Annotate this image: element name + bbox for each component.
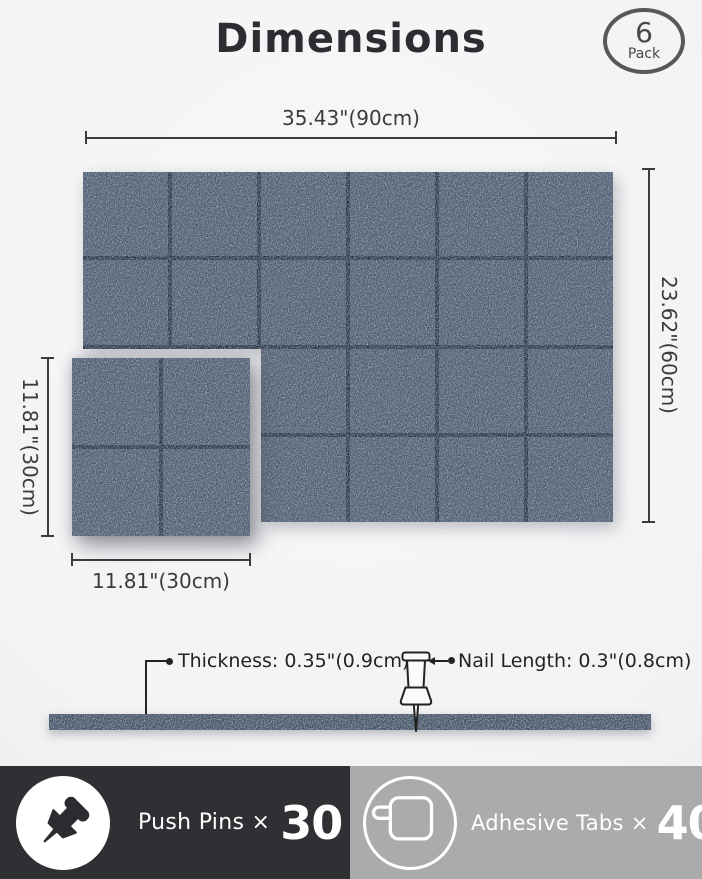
product-dimensions-infographic: Dimensions 6 Pack 35.43"(90cm) (0, 0, 702, 879)
nail-length-label: Nail Length: 0.3"(0.8cm) (458, 650, 691, 672)
felt-texture-overlay (49, 714, 651, 730)
panel-height-dimension-line (47, 358, 49, 536)
pushpin-icon-circle (16, 776, 110, 870)
thickness-label: Thickness: 0.35"(0.9cm) (178, 650, 409, 672)
dimension-tick (642, 168, 655, 170)
adhesive-tab-icon-circle (363, 776, 457, 870)
total-height-label: 23.62"(60cm) (657, 276, 681, 414)
total-width-label: 35.43"(90cm) (282, 106, 420, 130)
pushpin-outline-icon (399, 651, 433, 735)
callout-dot (448, 657, 455, 664)
dimension-tick (249, 553, 251, 566)
push-pins-label: Push Pins × (138, 810, 270, 835)
panel-height-label: 11.81"(30cm) (18, 378, 42, 516)
panel-side-view (49, 714, 651, 730)
pack-count: 6 (635, 19, 653, 47)
adhesive-tab-icon (366, 779, 454, 867)
single-panel (72, 358, 250, 536)
panel-width-label: 11.81"(30cm) (92, 569, 230, 593)
panel-width-dimension-line (72, 559, 250, 561)
callout-dot (166, 658, 173, 665)
dimension-tick (615, 131, 617, 144)
pack-badge: 6 Pack (603, 8, 685, 74)
adhesive-tabs-count: 40 (657, 800, 702, 846)
thickness-leader-line (145, 660, 167, 662)
dimension-tick (85, 131, 87, 144)
nail-leader-line (433, 660, 448, 662)
page-title: Dimensions (0, 16, 702, 62)
dimension-tick (71, 553, 73, 566)
dimension-tick (41, 535, 54, 537)
thickness-leader-line (145, 662, 147, 714)
dimension-tick (41, 357, 54, 359)
dimension-tick (642, 521, 655, 523)
total-height-dimension-line (648, 169, 650, 522)
total-width-dimension-line (86, 137, 617, 139)
felt-texture-overlay (261, 349, 613, 522)
adhesive-tabs-section: Adhesive Tabs × 40 (350, 766, 702, 879)
pushpin-icon (36, 796, 90, 850)
felt-texture-overlay (83, 172, 613, 349)
pack-label: Pack (628, 47, 660, 62)
push-pins-count: 30 (280, 800, 342, 846)
felt-texture-overlay (72, 358, 250, 536)
push-pins-section: Push Pins × 30 (0, 766, 350, 879)
adhesive-tabs-label: Adhesive Tabs × (471, 811, 649, 835)
